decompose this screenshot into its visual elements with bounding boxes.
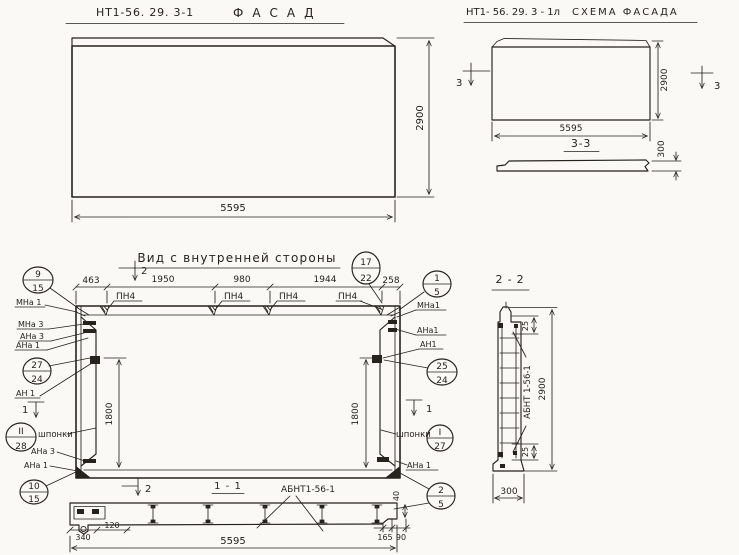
s11-dim-total: 5595: [220, 536, 245, 547]
drawing-sheet: НТ1-56. 29. 3-1 ФАСАД 5595 2900 НТ1- 56.…: [0, 0, 739, 555]
label-ana1-right-bottom: АНа 1: [407, 461, 431, 470]
facade-extension-lines: [72, 38, 434, 222]
inner-mark2-top: 2: [141, 266, 147, 277]
schema-dim-height: 2900: [660, 68, 670, 91]
label-mna3-left: МНа 3: [18, 320, 43, 329]
panel-drawing-svg: НТ1-56. 29. 3-1 ФАСАД 5595 2900 НТ1- 56.…: [0, 0, 739, 555]
pn4-label-4: ПН4: [338, 292, 358, 302]
callout-2-5: 2 5: [427, 483, 455, 510]
s22-dim-25-bottom: 25: [521, 447, 530, 457]
schema-mark3-left: 3: [456, 78, 462, 89]
callout-II-28: II 28: [6, 423, 36, 452]
s11-anchor-loop: [81, 526, 86, 531]
label-shponki-right: шпонки: [396, 430, 431, 440]
callout-2: 2: [438, 486, 444, 496]
s22-embed-plates: [498, 323, 518, 468]
schema-mark3-left-lines: [463, 63, 490, 71]
s11-dim-340: 340: [75, 533, 90, 542]
callout-25-24: 25 24: [427, 359, 457, 386]
callout-27-right: 27: [434, 442, 445, 452]
inner-edge-ribs: [81, 317, 395, 466]
schema-thickness-ext: [652, 161, 681, 171]
callout-22: 22: [360, 274, 371, 284]
s22-title: 2 - 2: [496, 273, 525, 286]
schema-dim-width: 5595: [560, 124, 583, 134]
section-2-2: 2 - 2 АБНТ 1-56-1 25 25 2900 300: [492, 273, 557, 503]
pn4-label-2: ПН4: [224, 292, 244, 302]
s22-dim-height: 2900: [538, 377, 548, 400]
callout-I-27: I 27: [427, 425, 453, 452]
facade-dim-width: 5595: [220, 203, 245, 214]
s11-dim-165: 165: [377, 533, 392, 542]
pn4-notch-1: [100, 306, 109, 315]
schema-top-rib: [492, 39, 650, 48]
label-ana1-left-top: АНа 1: [16, 341, 40, 350]
s22-outline: [498, 307, 521, 460]
s11-dim-90: 90: [396, 533, 406, 542]
inner-embedded-plates: [83, 320, 397, 463]
schema-view: НТ1- 56. 29. 3 - 1л СХЕМА ФАСАДА 3 3 290…: [456, 7, 720, 180]
inner-mark2-top-lines: [119, 261, 135, 268]
s11-embed-5: [372, 505, 382, 523]
s11-embed-2: [203, 505, 213, 523]
s11-title: 1 - 1: [214, 481, 242, 492]
label-ana3-left-bottom: АНа 3: [31, 447, 55, 456]
inner-dim-463: 463: [82, 276, 99, 286]
schema-profile-3-3: [497, 160, 649, 171]
pn4-labels: ПН4 ПН4 ПН4 ПН4: [107, 292, 381, 310]
inner-inner-contour: [81, 306, 395, 478]
label-ana3-left-top: АНа 3: [20, 332, 44, 341]
callout-10: 10: [28, 482, 40, 492]
callout-28: 28: [15, 442, 27, 452]
inner-dim-1944: 1944: [314, 275, 337, 285]
facade-top-rib: [72, 38, 394, 46]
callout-24-left: 24: [31, 375, 43, 385]
pn4-label-1: ПН4: [116, 292, 136, 302]
inner-mark2-bottom: 2: [145, 484, 151, 495]
schema-dim-thickness: 300: [657, 140, 667, 157]
label-an1-right: АН1: [420, 340, 437, 349]
label-an1-left: АН 1: [16, 389, 35, 398]
schema-section-title: 3-3: [571, 137, 591, 150]
callout-9: 9: [35, 270, 41, 280]
s11-dim-120: 120: [104, 521, 119, 530]
callout-27: 27: [31, 361, 42, 371]
facade-view: НТ1-56. 29. 3-1 ФАСАД 5595 2900: [66, 6, 434, 222]
callout-1-5: 1 5: [423, 271, 451, 298]
pn4-notch-2: [208, 306, 217, 315]
s11-label-leaders: [257, 496, 323, 531]
inner-view: Вид с внутренней стороны 2 463 1950 980 …: [6, 251, 457, 510]
schema-code: НТ1- 56. 29. 3 - 1л: [466, 7, 560, 18]
schema-caption: СХЕМА ФАСАДА: [572, 7, 679, 18]
inner-dim-258: 258: [382, 276, 399, 286]
label-mna1-left: МНа 1: [16, 298, 41, 307]
callout-25: 25: [436, 362, 447, 372]
inner-dim-1950: 1950: [152, 275, 175, 285]
inner-dim-1800-left: 1800: [105, 402, 115, 425]
callout-5-bottom: 5: [438, 500, 444, 510]
section-1-1: 1 - 1 АБНТ1-56-1 340 120 165 90 40 5595: [67, 481, 410, 552]
pn4-label-3: ПН4: [279, 292, 299, 302]
inner-left-leaders: [40, 288, 96, 486]
callout-1: 1: [434, 274, 440, 284]
s11-channel-plate-1: [77, 509, 84, 514]
s11-channel-plate-2: [92, 509, 99, 514]
callout-10-15: 10 15: [20, 480, 48, 505]
inner-bottom-corner-marks: [76, 466, 400, 478]
inner-outline: [76, 306, 400, 478]
label-mna1-right: МНа1: [417, 301, 440, 310]
callout-9-15: 9 15: [23, 267, 53, 294]
s22-label: АБНТ 1-56-1: [523, 365, 533, 419]
s22-dim-25-top: 25: [521, 321, 530, 331]
callout-24-right: 24: [436, 376, 448, 386]
label-ana1-left-bottom: АНа 1: [24, 461, 48, 470]
pn4-notch-3: [263, 306, 272, 315]
s22-reinforcement-cage: [500, 324, 519, 458]
s11-embed-4: [317, 505, 327, 523]
label-ana1-right: АНа1: [417, 326, 438, 335]
s11-embed-3: [260, 505, 270, 523]
inner-mark1-right: 1: [426, 404, 432, 415]
inner-mark1-left: 1: [22, 405, 28, 416]
inner-title: Вид с внутренней стороны: [137, 251, 336, 265]
s11-label: АБНТ1-56-1: [281, 485, 335, 495]
callout-15-top: 15: [32, 284, 43, 294]
callout-17: 17: [360, 258, 371, 268]
label-shponki-left: шпонки: [38, 430, 73, 440]
facade-code: НТ1-56. 29. 3-1: [96, 6, 194, 19]
s11-embed-1: [148, 505, 158, 523]
callout-II: II: [18, 427, 23, 437]
callout-15-bottom: 15: [28, 495, 39, 505]
s22-dim-width: 300: [500, 487, 517, 497]
callout-27-24: 27 24: [23, 358, 51, 385]
schema-mark3-right-lines: [691, 66, 713, 73]
inner-dim-980: 980: [233, 275, 250, 285]
facade-dim-height: 2900: [415, 105, 426, 130]
facade-caption: ФАСАД: [233, 6, 323, 20]
s11-dim-40: 40: [392, 491, 401, 501]
callout-17-22: 17 22: [352, 252, 380, 284]
schema-outline: [492, 47, 650, 120]
s22-foot: [493, 460, 524, 471]
callout-I: I: [439, 428, 442, 438]
inner-dim-1800-right: 1800: [351, 402, 361, 425]
schema-mark3-right: 3: [714, 81, 720, 92]
facade-outline: [72, 46, 395, 197]
callout-5-top: 5: [434, 288, 440, 298]
